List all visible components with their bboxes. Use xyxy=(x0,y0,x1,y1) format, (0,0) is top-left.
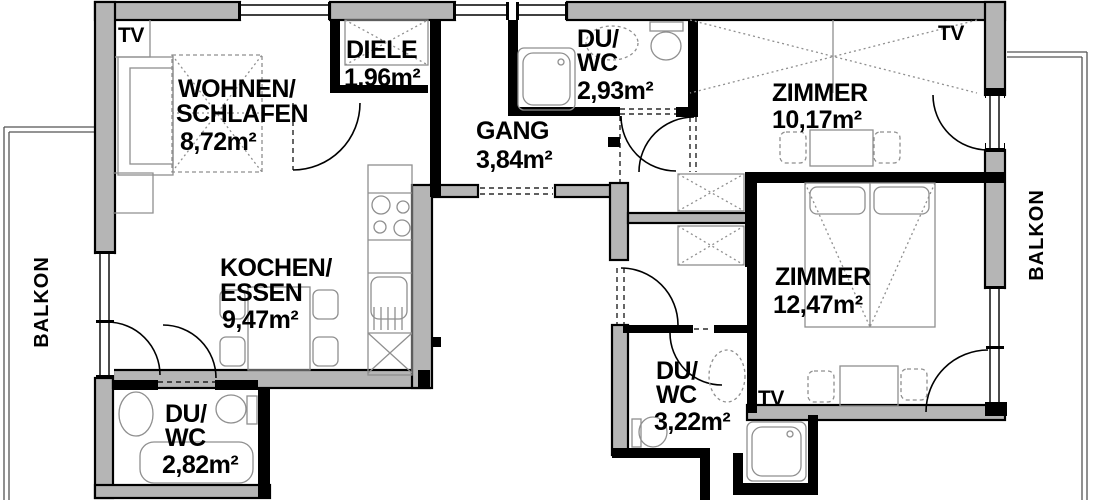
label-wohnen-area: 8,72m² xyxy=(180,128,256,156)
zimmer2-sitting xyxy=(808,366,927,406)
label-duwc-left-area: 2,82m² xyxy=(162,451,238,479)
label-wohnen-line2: SCHLAFEN xyxy=(176,100,308,128)
label-kochen-line1: KOCHEN/ xyxy=(220,254,332,282)
label-zimmer1: ZIMMER xyxy=(772,79,868,107)
sofa xyxy=(113,20,173,213)
label-gang-area: 3,84m² xyxy=(476,146,552,174)
label-gang: GANG xyxy=(476,117,549,145)
label-balkon-right: BALKON xyxy=(1026,189,1048,281)
windows xyxy=(96,2,1004,413)
label-kochen-area: 9,47m² xyxy=(222,306,298,334)
label-balkon-left: BALKON xyxy=(31,256,53,348)
label-zimmer2-area: 12,47m² xyxy=(773,291,863,319)
label-duwc-right-area: 3,22m² xyxy=(654,408,730,436)
floor-plan: WOHNEN/ SCHLAFEN 8,72m² DIELE 1,96m² DU/… xyxy=(0,0,1099,500)
floor-plan-drawing: WOHNEN/ SCHLAFEN 8,72m² DIELE 1,96m² DU/… xyxy=(0,0,1099,500)
tv-marker-wohnen: TV xyxy=(118,24,144,47)
label-duwc-top-area: 2,93m² xyxy=(577,77,653,105)
label-duwc-top-line2: WC xyxy=(577,49,618,77)
tv-marker-zimmer2: TV xyxy=(758,387,784,410)
label-duwc-left-line2: WC xyxy=(165,424,206,452)
label-diele: DIELE xyxy=(346,36,417,64)
label-zimmer1-area: 10,17m² xyxy=(772,106,862,134)
kitchen-counter xyxy=(368,165,412,375)
tv-marker-zimmer1: TV xyxy=(938,22,964,45)
label-duwc-right-line2: WC xyxy=(656,381,697,409)
label-kochen-line2: ESSEN xyxy=(220,279,302,307)
label-diele-area: 1,96m² xyxy=(344,64,420,92)
label-zimmer2: ZIMMER xyxy=(775,263,871,291)
label-wohnen-line1: WOHNEN/ xyxy=(178,75,296,103)
